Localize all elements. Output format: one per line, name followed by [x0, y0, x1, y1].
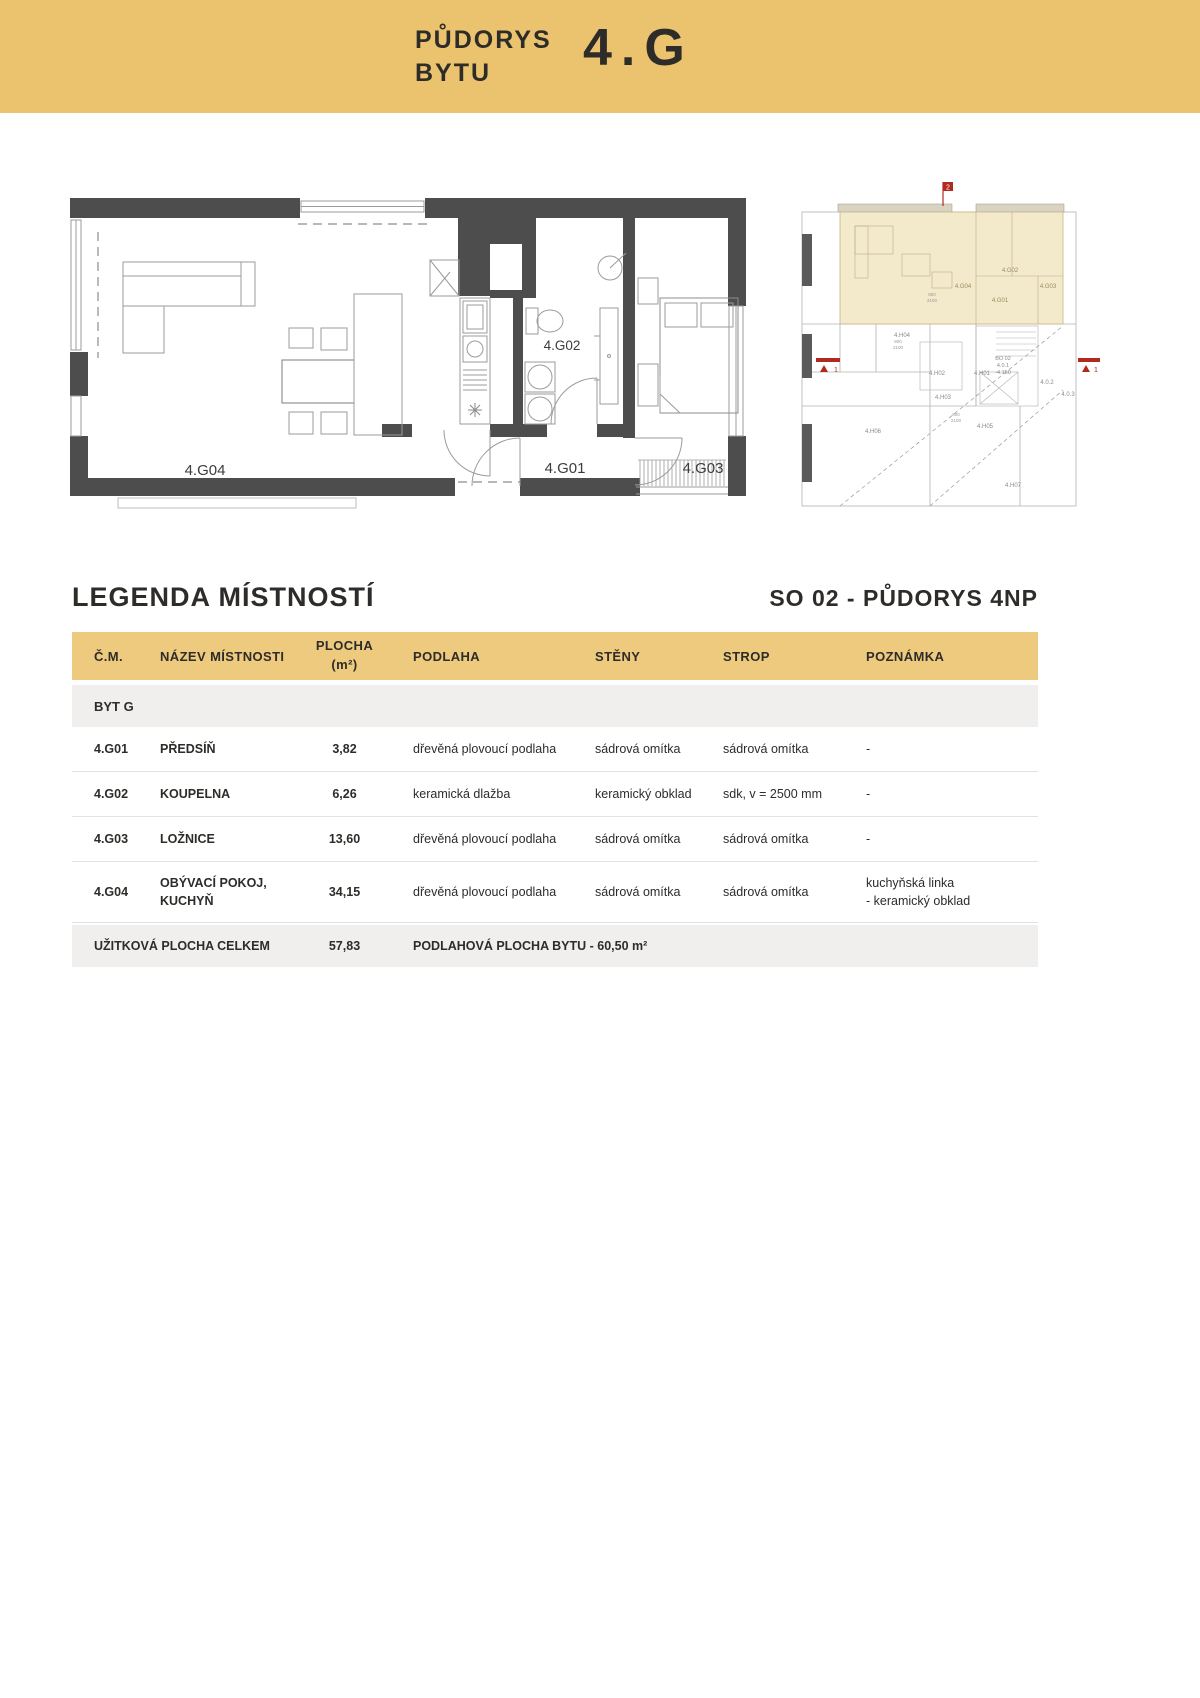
cell-walls: sádrová omítka — [573, 832, 701, 846]
mini-label-h02: 4.H02 — [929, 371, 946, 377]
mini-top-walls — [838, 204, 1064, 212]
cell-floor: dřevěná plovoucí podlaha — [391, 742, 573, 756]
cell-walls: sádrová omítka — [573, 885, 701, 899]
mini-label-g04: 4.G04 — [955, 284, 972, 290]
mini-label-core2: 4.0.1 — [997, 363, 1009, 369]
room-labels: 4.G04 4.G01 4.G03 4.G02 — [185, 338, 724, 479]
room-label-g03: 4.G03 — [683, 460, 724, 477]
windows — [71, 201, 743, 494]
dim-text: 2100 — [951, 418, 962, 423]
cell-floor: dřevěná plovoucí podlaha — [391, 832, 573, 846]
mini-label-h06: 4.H06 — [865, 429, 882, 435]
cell-note: - — [844, 832, 1038, 846]
section-right-label: 1 — [1094, 367, 1098, 374]
boiler-symbol — [468, 403, 482, 417]
col-header-name: NÁZEV MÍSTNOSTI — [138, 649, 298, 664]
table-row: 4.G02 KOUPELNA 6,26 keramická dlažba ker… — [72, 772, 1038, 817]
cell-id: 4.G02 — [72, 787, 138, 801]
cell-name: PŘEDSÍŇ — [138, 742, 298, 756]
section-arrow-right-icon — [1082, 365, 1090, 372]
section-flag-label: 2 — [946, 185, 950, 192]
walls — [70, 198, 746, 496]
main-floorplan: 4.G04 4.G01 4.G03 4.G02 — [70, 198, 746, 510]
cell-id: 4.G01 — [72, 742, 138, 756]
sheet-title: PŮDORYS BYTU — [415, 24, 552, 90]
mini-label-h03: 4.H03 — [935, 395, 952, 401]
sheet-title-line1: PŮDORYS — [415, 24, 552, 57]
table-row: 4.G04 OBÝVACÍ POKOJ, KUCHYŇ 34,15 dřevěn… — [72, 862, 1038, 923]
total-label: UŽITKOVÁ PLOCHA CELKEM — [72, 939, 298, 953]
mini-floorplan: 2 1 1 4.G04 4.G02 4.G01 4.G03 4.H04 4.H0… — [780, 176, 1100, 512]
col-header-cm: Č.M. — [72, 649, 138, 664]
table-row: 4.G03 LOŽNICE 13,60 dřevěná plovoucí pod… — [72, 817, 1038, 862]
legend-header: LEGENDA MÍSTNOSTÍ SO 02 - PŮDORYS 4NP — [72, 582, 1038, 613]
cell-ceiling: sádrová omítka — [701, 742, 844, 756]
legend-title: LEGENDA MÍSTNOSTÍ — [72, 582, 375, 613]
total-area: 57,83 — [298, 939, 391, 953]
mini-flat-highlight — [840, 212, 1063, 324]
mini-label-403: 4.0.3 — [1061, 392, 1075, 398]
table-header-row: Č.M. NÁZEV MÍSTNOSTI PLOCHA (m²) PODLAHA… — [72, 632, 1038, 680]
mini-label-402: 4.0.2 — [1040, 380, 1054, 386]
mini-label-g01: 4.G01 — [992, 298, 1009, 304]
section-arrow-left-icon — [820, 365, 828, 372]
table-total-row: UŽITKOVÁ PLOCHA CELKEM 57,83 PODLAHOVÁ P… — [72, 925, 1038, 967]
col-header-floor: PODLAHA — [391, 649, 573, 664]
dim-text: 2100 — [927, 298, 938, 303]
mini-label-g03: 4.G03 — [1040, 284, 1057, 290]
col-header-area: PLOCHA (m²) — [298, 637, 391, 675]
mini-label-h01: 4.H01 — [974, 371, 991, 377]
cell-name: KOUPELNA — [138, 787, 298, 801]
cell-ceiling: sádrová omítka — [701, 832, 844, 846]
mini-label-h05: 4.H05 — [977, 424, 994, 430]
sheet-title-line2: BYTU — [415, 57, 552, 90]
dim-text: 800 — [894, 339, 902, 344]
cell-ceiling: sádrová omítka — [701, 885, 844, 899]
col-header-ceiling: STROP — [701, 649, 844, 664]
cell-note: - — [844, 787, 1038, 801]
cell-floor: dřevěná plovoucí podlaha — [391, 885, 573, 899]
floorplan-sheet: PŮDORYS BYTU 4.G — [0, 0, 1200, 1698]
cell-ceiling: sdk, v = 2500 mm — [701, 787, 844, 801]
section-left-label: 1 — [834, 367, 838, 374]
dim-text: 800 — [928, 292, 936, 297]
mini-facade — [802, 234, 812, 482]
mini-label-core3: -4.150 — [995, 370, 1011, 376]
cell-note: kuchyňská linka - keramický obklad — [844, 874, 1038, 910]
cell-id: 4.G03 — [72, 832, 138, 846]
cell-note: - — [844, 742, 1038, 756]
dim-text: 800 — [952, 412, 960, 417]
cell-id: 4.G04 — [72, 885, 138, 899]
unit-code: 4.G — [583, 18, 694, 78]
dim-text: 2100 — [893, 345, 904, 350]
legend-subtitle: SO 02 - PŮDORYS 4NP — [769, 585, 1038, 612]
total-note: PODLAHOVÁ PLOCHA BYTU - 60,50 m² — [391, 939, 1038, 953]
table-group-row: BYT G — [72, 685, 1038, 727]
col-header-walls: STĚNY — [573, 649, 701, 664]
mini-label-g02: 4.G02 — [1002, 268, 1019, 274]
room-label-g04: 4.G04 — [185, 462, 226, 479]
room-label-g02: 4.G02 — [544, 338, 581, 353]
cell-area: 3,82 — [298, 742, 391, 756]
cell-area: 6,26 — [298, 787, 391, 801]
table-row: 4.G01 PŘEDSÍŇ 3,82 dřevěná plovoucí podl… — [72, 727, 1038, 772]
mini-label-core1: BO 02 — [995, 356, 1011, 362]
room-label-g01: 4.G01 — [545, 460, 586, 477]
cell-floor: keramická dlažba — [391, 787, 573, 801]
group-label: BYT G — [72, 699, 1038, 714]
cell-walls: keramický obklad — [573, 787, 701, 801]
cell-area: 34,15 — [298, 885, 391, 899]
mini-label-h07: 4.H07 — [1005, 483, 1022, 489]
room-table: Č.M. NÁZEV MÍSTNOSTI PLOCHA (m²) PODLAHA… — [72, 632, 1038, 967]
header-band: PŮDORYS BYTU 4.G — [0, 0, 1200, 113]
col-header-note: POZNÁMKA — [844, 649, 1038, 664]
cell-area: 13,60 — [298, 832, 391, 846]
cell-name: OBÝVACÍ POKOJ, KUCHYŇ — [138, 874, 298, 910]
cell-walls: sádrová omítka — [573, 742, 701, 756]
cell-name: LOŽNICE — [138, 832, 298, 846]
